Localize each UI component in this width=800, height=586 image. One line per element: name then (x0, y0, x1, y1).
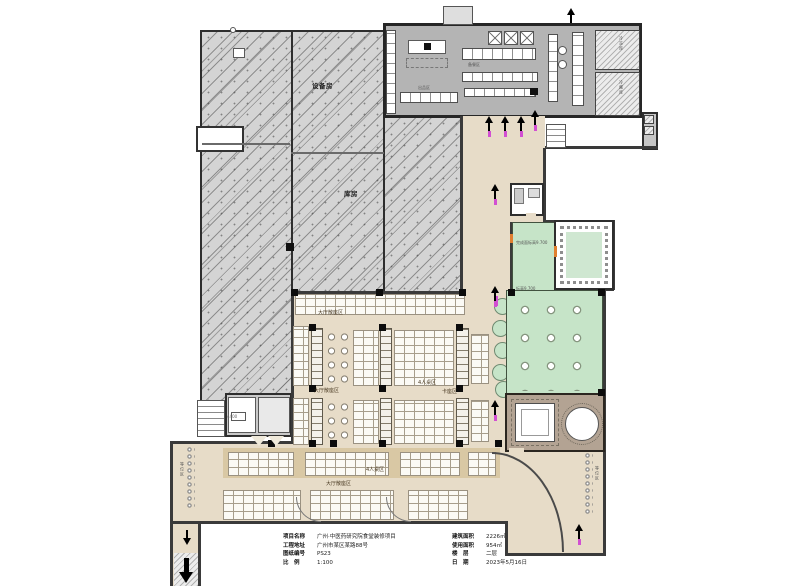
dining-label: 大厅散座区 (318, 310, 343, 316)
door-marker (554, 246, 557, 257)
column-marker (459, 289, 466, 296)
kitchen-equipment (386, 30, 396, 114)
wall (172, 521, 507, 524)
dimension-label: 4400 (227, 414, 237, 420)
two-top-tables (471, 334, 489, 384)
dining-table-cluster (310, 490, 394, 520)
banquette (380, 398, 392, 445)
column-marker (379, 385, 386, 392)
column-marker (309, 440, 316, 447)
stove-block (424, 43, 431, 50)
flow-arrow-up (530, 110, 540, 131)
partition-wall (291, 152, 384, 154)
dining-table-cluster (228, 452, 294, 476)
facade-notch (196, 126, 244, 152)
dining-table-cluster (394, 330, 454, 386)
room-label: 设备房 (312, 83, 333, 89)
booth-column (293, 326, 309, 386)
flow-arrow-up (574, 524, 584, 545)
title-value: 2023年5月16日 (486, 560, 527, 566)
pass-window (520, 31, 534, 45)
title-value: 广州市某区某路88号 (317, 543, 368, 549)
title-row: 项目名称 广州·中医药研究院食堂装修项目 (283, 534, 396, 540)
stair-room (197, 400, 225, 437)
hatch-zone-upper-mid (291, 30, 385, 293)
title-label: 楼 层 (452, 551, 486, 557)
column-marker (379, 324, 386, 331)
column-marker (598, 389, 605, 396)
hatch-zone-left-band (200, 30, 293, 437)
title-value: PS23 (317, 551, 331, 557)
column-marker (598, 289, 605, 296)
title-label: 日 期 (452, 560, 486, 566)
waiting-label: 等位区 (179, 462, 185, 477)
utility-door-gap (526, 213, 536, 217)
double-door-leaf (268, 436, 284, 446)
column-marker (508, 289, 515, 296)
stock-pot (558, 46, 567, 55)
title-value: 广州·中医药研究院食堂装修项目 (317, 534, 396, 540)
pass-window (504, 31, 518, 45)
cold-room-label: 冷冻库 (618, 36, 624, 51)
kitchen-counter (462, 72, 538, 82)
utility-fixture (528, 188, 540, 198)
dining-label: 4人桌区 (366, 467, 384, 473)
column-marker (456, 385, 463, 392)
title-value: 954㎡ (486, 543, 502, 549)
title-label: 项目名称 (283, 534, 317, 540)
title-row: 工程地址 广州市某区某路88号 (283, 543, 396, 549)
title-label: 建筑面积 (452, 534, 486, 540)
grid-bubble (230, 27, 236, 33)
flow-arrow-up (566, 8, 576, 23)
floor-plan: 设备房 库房 出品区 备餐区 大厅散座区 大厅散座区 4人桌区 卡座区 4人桌区… (0, 0, 800, 586)
service-stair (546, 124, 566, 148)
service-corridor (462, 224, 512, 294)
dining-table-cluster (394, 400, 454, 444)
kitchen-counter (400, 92, 458, 103)
title-value: 二层 (486, 551, 497, 557)
dining-table-cluster (223, 490, 301, 520)
banquette (456, 398, 469, 445)
wall (460, 116, 463, 296)
door-marker (510, 234, 513, 243)
vip-banquet-table-inner (521, 409, 549, 436)
dining-table-cluster (400, 452, 460, 476)
dining-label: 大厅散座区 (326, 481, 351, 487)
dining-table-cluster (353, 330, 379, 386)
title-row: 日 期 2023年5月16日 (452, 560, 527, 566)
title-block-left: 项目名称 广州·中医药研究院食堂装修项目 工程地址 广州市某区某路88号 图纸编… (283, 534, 396, 566)
terrace-round-tables (512, 296, 598, 391)
flow-arrow-up (490, 286, 500, 307)
title-block-right: 建筑面积 2226㎡ 使用面积 954㎡ 楼 层 二层 日 期 2023年5月1… (452, 534, 527, 566)
banquette (380, 328, 392, 386)
back-room-b (258, 397, 290, 433)
flow-arrow-up (516, 116, 526, 137)
dining-table-cluster (408, 490, 468, 520)
booth-column (293, 398, 309, 445)
four-top-tables (325, 400, 351, 444)
flow-arrow-up (490, 184, 500, 205)
waiting-stools (584, 452, 593, 514)
vip-round-table (565, 407, 599, 441)
hatch-zone-under-kitchen (383, 116, 462, 293)
dining-label: 卡座区 (442, 389, 457, 395)
kitchen-counter (464, 88, 536, 97)
hood-outline (406, 58, 448, 68)
title-row: 建筑面积 2226㎡ (452, 534, 527, 540)
kitchen-counter (462, 48, 536, 60)
dining-label: 4人桌区 (418, 380, 436, 386)
wall-fixture (233, 48, 245, 58)
utility-fixture (514, 188, 524, 204)
title-row: 使用面积 954㎡ (452, 543, 527, 549)
level-label: 标高9.700 (516, 286, 535, 292)
terrace-annex-core (566, 232, 602, 278)
wall (170, 441, 173, 586)
title-label: 使用面积 (452, 543, 486, 549)
level-label: 完成面标高9.700 (516, 240, 547, 246)
pass-window (488, 31, 502, 45)
two-top-tables (471, 400, 489, 442)
double-door-leaf (251, 436, 267, 446)
flow-arrow-up (500, 116, 510, 137)
kitchen-equipment (548, 34, 558, 102)
column-marker (330, 440, 337, 447)
column-marker (309, 324, 316, 331)
roof-stub (443, 6, 473, 25)
kitchen-label: 备餐区 (468, 62, 480, 68)
vip-door-gap (509, 448, 524, 453)
column-marker (456, 324, 463, 331)
wall (198, 521, 201, 586)
title-value: 1:100 (317, 560, 333, 566)
flow-arrow-up (484, 116, 494, 137)
stock-pot (558, 60, 567, 69)
cold-room-label: 冷藏库 (618, 80, 624, 95)
column-marker (291, 289, 298, 296)
four-top-tables (325, 330, 351, 386)
banquette (311, 328, 323, 386)
title-label: 工程地址 (283, 543, 317, 549)
title-row: 楼 层 二层 (452, 551, 527, 557)
kitchen-equipment (572, 32, 584, 106)
partition-wall (202, 143, 290, 145)
shaft-block (286, 243, 294, 251)
ac-unit (644, 126, 654, 135)
title-label: 比 例 (283, 560, 317, 566)
exit-arrow (179, 558, 193, 583)
equipment-block (530, 88, 538, 95)
column-marker (495, 440, 502, 447)
ac-unit (644, 115, 654, 124)
title-row: 图纸编号 PS23 (283, 551, 396, 557)
flow-arrow-down (182, 530, 192, 545)
waiting-stools (186, 446, 195, 508)
dining-table-cluster (353, 400, 379, 444)
column-marker (376, 289, 383, 296)
flow-arrow-up (490, 400, 500, 421)
dining-label: 大厅散座区 (314, 388, 339, 394)
title-label: 图纸编号 (283, 551, 317, 557)
room-label: 库房 (344, 191, 358, 197)
title-value: 2226㎡ (486, 534, 506, 540)
column-marker (379, 440, 386, 447)
banquette (456, 328, 469, 386)
waiting-label: 等位区 (594, 466, 600, 481)
column-marker (456, 440, 463, 447)
terrace-upper (512, 222, 556, 292)
banquette (311, 398, 323, 445)
kitchen-label: 出品区 (418, 85, 430, 91)
title-row: 比 例 1:100 (283, 560, 396, 566)
